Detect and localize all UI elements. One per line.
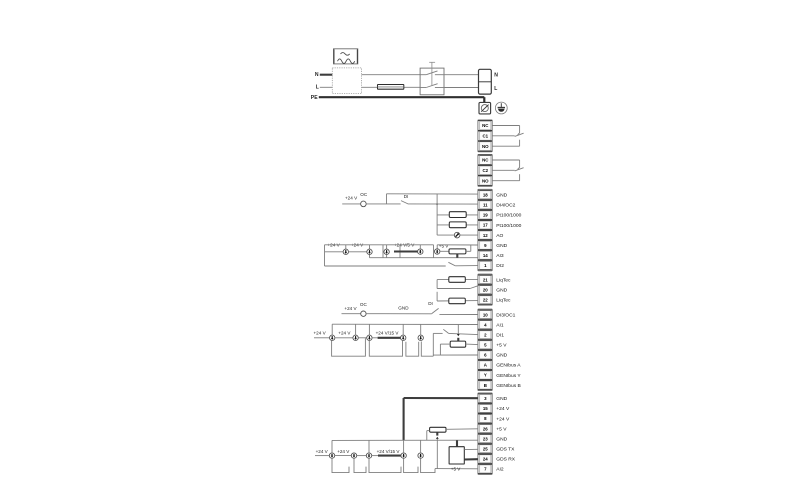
svg-text:AO: AO [496,233,503,239]
svg-text:10: 10 [483,312,488,317]
svg-text:N: N [315,72,319,78]
svg-text:24: 24 [483,457,488,462]
svg-text:23: 23 [483,436,488,441]
svg-text:25: 25 [483,446,488,451]
svg-text:+5 V: +5 V [496,343,507,349]
svg-text:20: 20 [483,287,488,292]
svg-text:C2: C2 [482,168,488,173]
svg-text:+24 V/15 V: +24 V/15 V [376,331,400,336]
svg-text:NC: NC [482,123,489,128]
svg-text:+24 V: +24 V [314,331,327,336]
svg-text:DI2: DI2 [496,263,504,269]
svg-text:L: L [316,85,319,91]
svg-text:11: 11 [483,203,488,208]
svg-text:+24 V: +24 V [344,306,357,311]
svg-text:26: 26 [483,426,488,431]
svg-text:Pt100/1000: Pt100/1000 [496,223,521,229]
svg-text:+5 V: +5 V [439,244,450,249]
svg-text:NO: NO [482,144,489,149]
svg-text:GENIbus A: GENIbus A [496,363,521,369]
svg-text:OC: OC [360,302,368,307]
svg-text:+24 V: +24 V [316,449,329,454]
svg-text:B: B [484,383,487,388]
svg-text:L: L [494,86,497,92]
svg-text:19: 19 [483,213,488,218]
svg-text:22: 22 [483,297,488,302]
svg-text:+5 V: +5 V [451,466,462,471]
svg-text:GND: GND [496,436,507,442]
svg-text:+24 V: +24 V [496,406,510,412]
svg-text:GND: GND [496,243,507,249]
svg-text:C1: C1 [482,134,488,139]
svg-text:14: 14 [483,253,488,258]
svg-text:LiqTec: LiqTec [496,297,511,303]
svg-text:N: N [494,73,498,79]
svg-text:AI1: AI1 [496,322,504,328]
svg-text:NO: NO [482,178,489,183]
svg-text:DI4/OC2: DI4/OC2 [496,203,515,209]
svg-text:DI: DI [428,301,433,306]
svg-text:GND: GND [496,353,507,359]
svg-text:GND: GND [496,396,507,402]
svg-text:NC: NC [482,158,489,163]
svg-text:12: 12 [483,233,488,238]
svg-text:PE: PE [311,95,318,101]
svg-text:18: 18 [483,193,488,198]
svg-text:+24 V: +24 V [345,196,358,201]
svg-text:OC: OC [360,192,368,197]
svg-text:GENIbus Y: GENIbus Y [496,373,521,379]
svg-text:+24 V: +24 V [338,331,351,336]
svg-text:DI: DI [404,194,409,199]
svg-text:GND: GND [496,193,507,199]
svg-text:DI3/OC1: DI3/OC1 [496,312,515,318]
svg-text:GDS TX: GDS TX [496,447,515,453]
svg-text:15: 15 [483,406,488,411]
svg-text:GENIbus B: GENIbus B [496,383,520,389]
svg-text:+24 V/15 V: +24 V/15 V [377,449,401,454]
svg-text:Pt100/1000: Pt100/1000 [496,213,521,219]
svg-text:GND: GND [398,306,409,311]
svg-text:AI2: AI2 [496,467,504,473]
svg-text:AI3: AI3 [496,253,504,259]
svg-text:GND: GND [496,287,507,293]
svg-text:+5 V: +5 V [496,426,507,432]
svg-text:21: 21 [483,277,488,282]
svg-text:Y: Y [484,373,487,378]
svg-text:GDS RX: GDS RX [496,457,515,463]
svg-text:LiqTec: LiqTec [496,277,511,283]
svg-text:DI1: DI1 [496,332,504,338]
svg-text:+24 V: +24 V [496,416,510,422]
svg-text:+24 V: +24 V [337,449,350,454]
svg-text:17: 17 [483,223,488,228]
